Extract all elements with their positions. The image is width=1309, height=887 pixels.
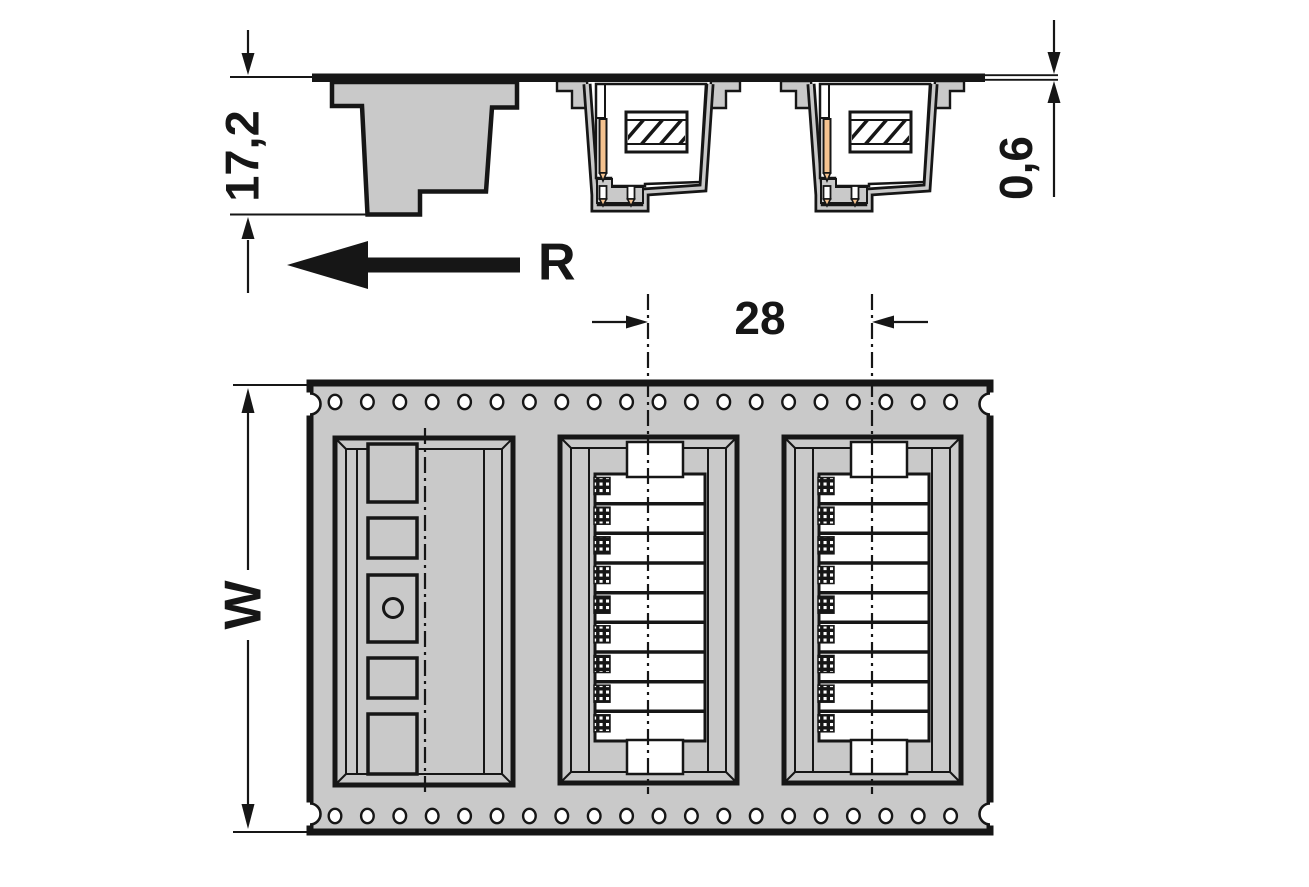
sprocket-hole xyxy=(588,809,601,823)
sprocket-hole xyxy=(491,395,504,409)
empty-pocket-section xyxy=(332,82,517,215)
clamp-opening xyxy=(594,656,610,673)
sprocket-hole xyxy=(653,809,666,823)
pocket-rib-5 xyxy=(368,714,417,774)
sprocket-hole xyxy=(718,809,731,823)
dim-label-28: 28 xyxy=(734,292,785,344)
sprocket-hole xyxy=(523,809,536,823)
pocket-rib-2 xyxy=(368,518,417,558)
sprocket-hole xyxy=(426,395,439,409)
sprocket-hole xyxy=(361,809,374,823)
clamp-opening xyxy=(594,507,610,524)
dimension-pocket-pitch: 28 xyxy=(592,292,928,344)
sprocket-hole xyxy=(426,809,439,823)
section-view: 17,2 0,6 R xyxy=(215,20,1060,293)
sprocket-hole xyxy=(912,395,925,409)
dimension-tape-thickness: 0,6 xyxy=(990,20,1060,200)
sprocket-hole xyxy=(880,395,893,409)
clamp-opening xyxy=(594,478,610,495)
connector-tab-bottom xyxy=(627,740,683,774)
clamp-opening xyxy=(594,537,610,554)
direction-arrow-r: R xyxy=(287,234,576,292)
sprocket-hole xyxy=(944,809,957,823)
connector-body-top xyxy=(595,474,705,741)
sprocket-hole xyxy=(491,809,504,823)
dim-label-17-2: 17,2 xyxy=(215,110,268,201)
drawing-page: 17,2 0,6 R 28 xyxy=(0,0,1309,887)
solder-pin-2 xyxy=(628,186,635,199)
sprocket-hole xyxy=(653,395,666,409)
sprocket-hole xyxy=(815,395,828,409)
dim-label-0-6: 0,6 xyxy=(990,136,1042,200)
clamp-opening xyxy=(594,596,610,613)
clamp-opening xyxy=(594,626,610,643)
sprocket-hole xyxy=(361,395,374,409)
sprocket-hole xyxy=(458,395,471,409)
sprocket-hole xyxy=(815,809,828,823)
sprocket-hole xyxy=(944,395,957,409)
pocket-rib-1 xyxy=(368,444,417,502)
sprocket-hole xyxy=(556,809,569,823)
sprocket-hole xyxy=(458,809,471,823)
sprocket-hole xyxy=(523,395,536,409)
connector-section xyxy=(557,81,740,208)
sprocket-hole xyxy=(750,809,763,823)
dim-label-r: R xyxy=(538,234,576,292)
sprocket-hole xyxy=(847,395,860,409)
clamp-opening xyxy=(594,685,610,702)
sprocket-hole xyxy=(750,395,763,409)
sprocket-hole xyxy=(912,809,925,823)
connector-tab-top xyxy=(627,442,683,477)
pocket-index-hole xyxy=(384,599,403,618)
sprocket-hole xyxy=(620,809,633,823)
sprocket-hole xyxy=(588,395,601,409)
tape-surface-bar xyxy=(312,74,985,83)
sprocket-hole xyxy=(329,809,342,823)
sprocket-hole xyxy=(847,809,860,823)
sprocket-hole xyxy=(880,809,893,823)
clamp-opening xyxy=(594,567,610,584)
clamp-opening xyxy=(594,715,610,732)
dimension-tape-width: W xyxy=(215,385,313,832)
sprocket-hole xyxy=(685,809,698,823)
sprocket-hole xyxy=(556,395,569,409)
sprocket-hole xyxy=(782,809,795,823)
connector-section-2 xyxy=(781,81,964,208)
dim-label-w: W xyxy=(215,580,273,630)
left-arrow-icon xyxy=(287,241,520,289)
pocket-rib-4 xyxy=(368,658,417,698)
sprocket-hole xyxy=(782,395,795,409)
sprocket-hole xyxy=(394,809,407,823)
sprocket-hole xyxy=(329,395,342,409)
contact-pin xyxy=(600,119,607,173)
sprocket-hole xyxy=(718,395,731,409)
tape-top-view xyxy=(303,294,997,832)
sprocket-hole xyxy=(620,395,633,409)
sprocket-hole xyxy=(394,395,407,409)
sprocket-hole xyxy=(685,395,698,409)
solder-pin-1 xyxy=(600,186,607,199)
tape-reel-drawing: 17,2 0,6 R 28 xyxy=(0,0,1309,887)
